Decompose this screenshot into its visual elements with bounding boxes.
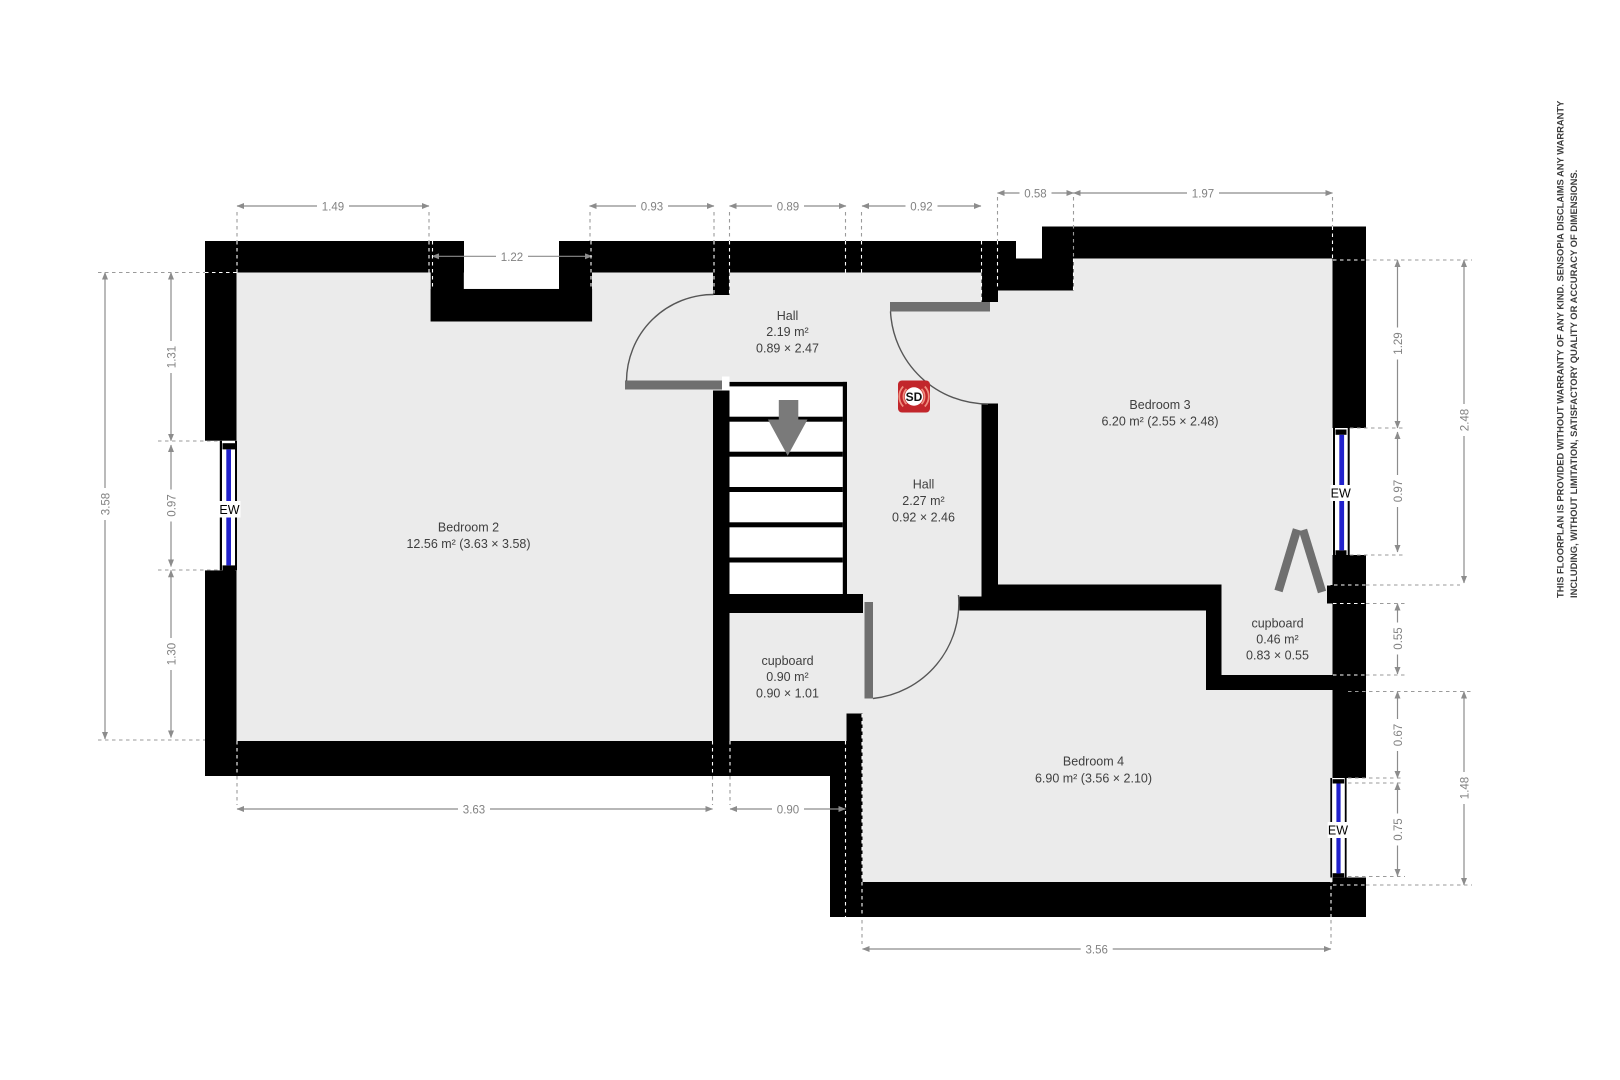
svg-text:3.58: 3.58	[101, 493, 113, 515]
svg-text:2.27 m²: 2.27 m²	[902, 494, 944, 508]
svg-text:0.92: 0.92	[910, 202, 932, 214]
svg-text:0.93: 0.93	[641, 202, 663, 214]
svg-text:Bedroom 2: Bedroom 2	[438, 521, 499, 535]
svg-text:EW: EW	[1328, 824, 1348, 838]
svg-text:0.67: 0.67	[1393, 724, 1405, 746]
svg-text:0.83 × 0.55: 0.83 × 0.55	[1246, 649, 1309, 663]
svg-text:0.97: 0.97	[167, 494, 179, 516]
svg-text:Hall: Hall	[777, 309, 799, 323]
svg-text:12.56 m² (3.63 × 3.58): 12.56 m² (3.63 × 3.58)	[406, 537, 530, 551]
svg-text:3.56: 3.56	[1086, 945, 1108, 957]
svg-text:1.30: 1.30	[167, 643, 179, 665]
svg-text:0.89 × 2.47: 0.89 × 2.47	[756, 342, 819, 356]
svg-text:0.46 m²: 0.46 m²	[1256, 633, 1298, 647]
svg-text:Bedroom 3: Bedroom 3	[1129, 398, 1190, 412]
svg-text:1.48: 1.48	[1460, 777, 1472, 799]
svg-text:cupboard: cupboard	[761, 654, 813, 668]
svg-text:1.97: 1.97	[1192, 189, 1214, 201]
svg-text:6.20 m² (2.55 × 2.48): 6.20 m² (2.55 × 2.48)	[1101, 415, 1218, 429]
svg-text:Bedroom 4: Bedroom 4	[1063, 755, 1124, 769]
svg-text:1.49: 1.49	[322, 202, 344, 214]
svg-text:3.63: 3.63	[463, 805, 485, 817]
svg-text:0.90: 0.90	[777, 805, 799, 817]
svg-text:2.48: 2.48	[1460, 409, 1472, 431]
svg-text:0.75: 0.75	[1393, 818, 1405, 840]
svg-text:EW: EW	[219, 503, 239, 517]
svg-text:0.58: 0.58	[1024, 189, 1046, 201]
svg-text:0.90 m²: 0.90 m²	[766, 670, 808, 684]
svg-text:0.92 × 2.46: 0.92 × 2.46	[892, 511, 955, 525]
svg-text:2.19 m²: 2.19 m²	[766, 325, 808, 339]
svg-text:EW: EW	[1331, 487, 1351, 501]
svg-text:0.89: 0.89	[777, 202, 799, 214]
svg-text:1.29: 1.29	[1393, 332, 1405, 354]
svg-text:THIS FLOORPLAN IS PROVIDED WIT: THIS FLOORPLAN IS PROVIDED WITHOUT WARRA…	[1555, 100, 1566, 598]
svg-text:0.97: 0.97	[1393, 480, 1405, 502]
svg-text:SD: SD	[906, 390, 923, 404]
svg-text:0.90 × 1.01: 0.90 × 1.01	[756, 687, 819, 701]
svg-text:Hall: Hall	[913, 478, 935, 492]
svg-text:1.22: 1.22	[501, 252, 523, 264]
svg-text:6.90 m² (3.56 × 2.10): 6.90 m² (3.56 × 2.10)	[1035, 772, 1152, 786]
svg-text:0.55: 0.55	[1393, 627, 1405, 649]
svg-text:cupboard: cupboard	[1251, 617, 1303, 631]
svg-text:INCLUDING, WITHOUT LIMITATION,: INCLUDING, WITHOUT LIMITATION, SATISFACT…	[1568, 170, 1579, 598]
svg-text:1.31: 1.31	[167, 346, 179, 368]
